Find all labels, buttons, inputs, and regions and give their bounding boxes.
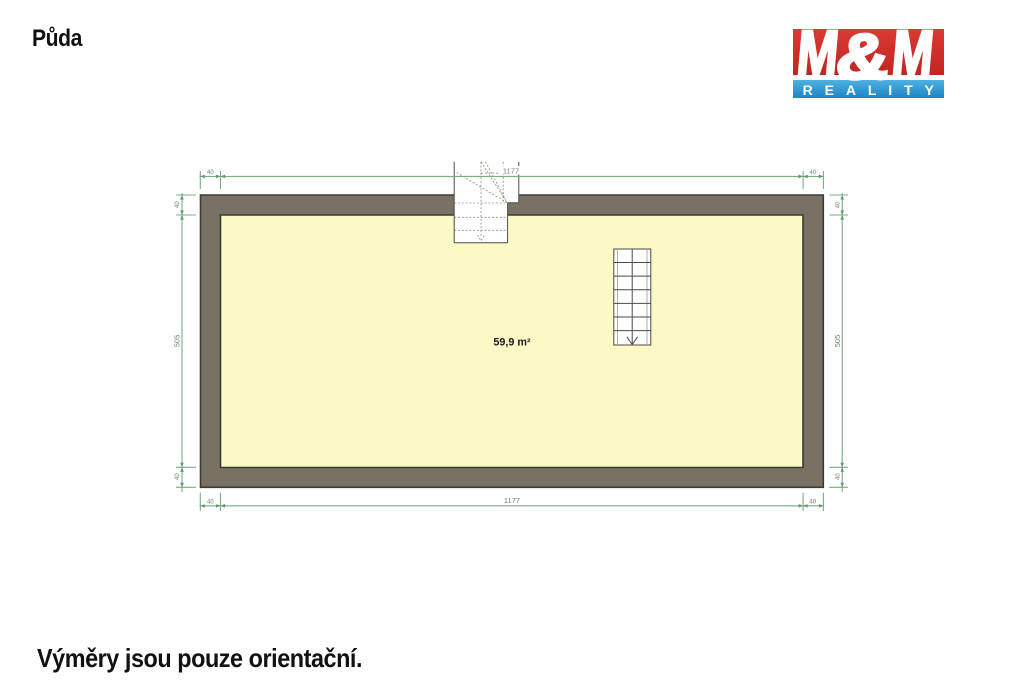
svg-text:40: 40 [207, 499, 214, 505]
svg-text:59,9 m²: 59,9 m² [493, 337, 531, 349]
svg-text:40: 40 [836, 201, 842, 208]
svg-text:505: 505 [833, 335, 842, 348]
svg-text:40: 40 [836, 473, 842, 480]
svg-text:40: 40 [207, 170, 214, 176]
svg-text:40: 40 [810, 499, 817, 505]
svg-text:40: 40 [175, 201, 181, 208]
svg-text:40: 40 [810, 170, 817, 176]
svg-text:505: 505 [172, 335, 181, 348]
svg-text:1177: 1177 [504, 496, 520, 505]
svg-text:1177: 1177 [503, 166, 519, 175]
svg-text:40: 40 [175, 473, 181, 480]
